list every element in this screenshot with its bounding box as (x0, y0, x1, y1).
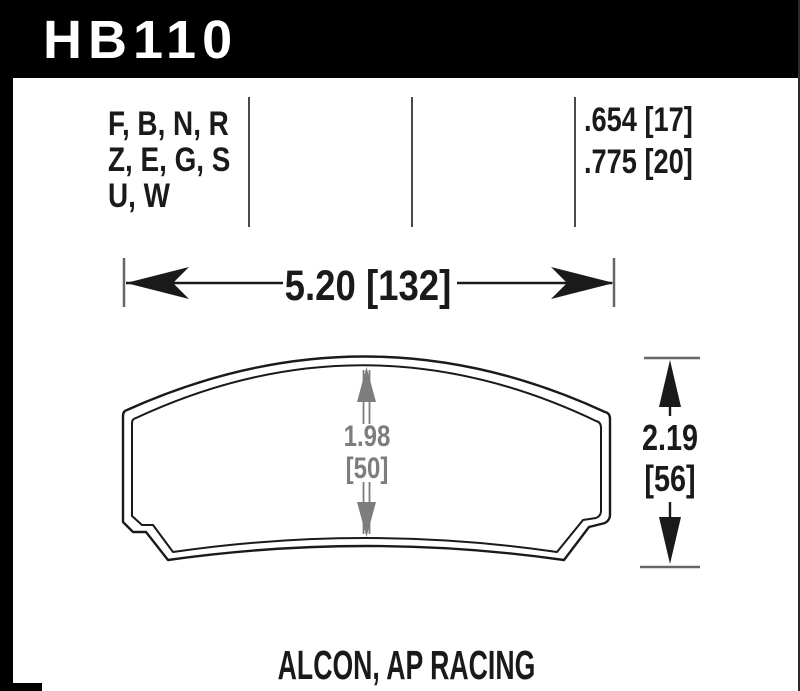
overall-height-mm-label: [56] (630, 458, 710, 500)
center-height-value-label: 1.98 (327, 420, 407, 454)
center-dim-down-arrow-icon (357, 502, 376, 537)
compound-codes: F, B, N, R Z, E, G, S U, W (108, 106, 230, 214)
spec-divider-2 (411, 97, 413, 227)
spec-divider-1 (248, 97, 250, 227)
brake-pad-spec-sheet: HB110 F, B, N, R Z, E, G, S U, W .654 [1… (0, 0, 800, 691)
center-dim-up-arrow-icon (357, 367, 376, 402)
caliper-applications-label: ALCON, AP RACING (151, 642, 663, 689)
height-dim-up-arrow-icon (659, 360, 681, 407)
height-dim-down-arrow-icon (659, 517, 681, 564)
part-number-label: HB110 (43, 9, 238, 71)
pad-thickness-line-2: .775 [20] (584, 141, 693, 183)
pad-thickness-line-1: .654 [17] (584, 99, 693, 141)
center-height-mm-label: [50] (327, 452, 407, 486)
header-bar: HB110 (0, 0, 800, 78)
width-dimension-label: 5.20 [132] (276, 262, 460, 311)
compound-codes-line-3: U, W (108, 178, 230, 214)
left-border-bar (0, 0, 13, 691)
overall-height-value-label: 2.19 (630, 417, 710, 459)
compound-codes-line-1: F, B, N, R (108, 106, 230, 142)
compound-codes-line-2: Z, E, G, S (108, 142, 230, 178)
spec-divider-3 (574, 97, 576, 227)
pad-thickness-specs: .654 [17] .775 [20] (584, 99, 693, 183)
bottom-left-border (0, 683, 42, 691)
